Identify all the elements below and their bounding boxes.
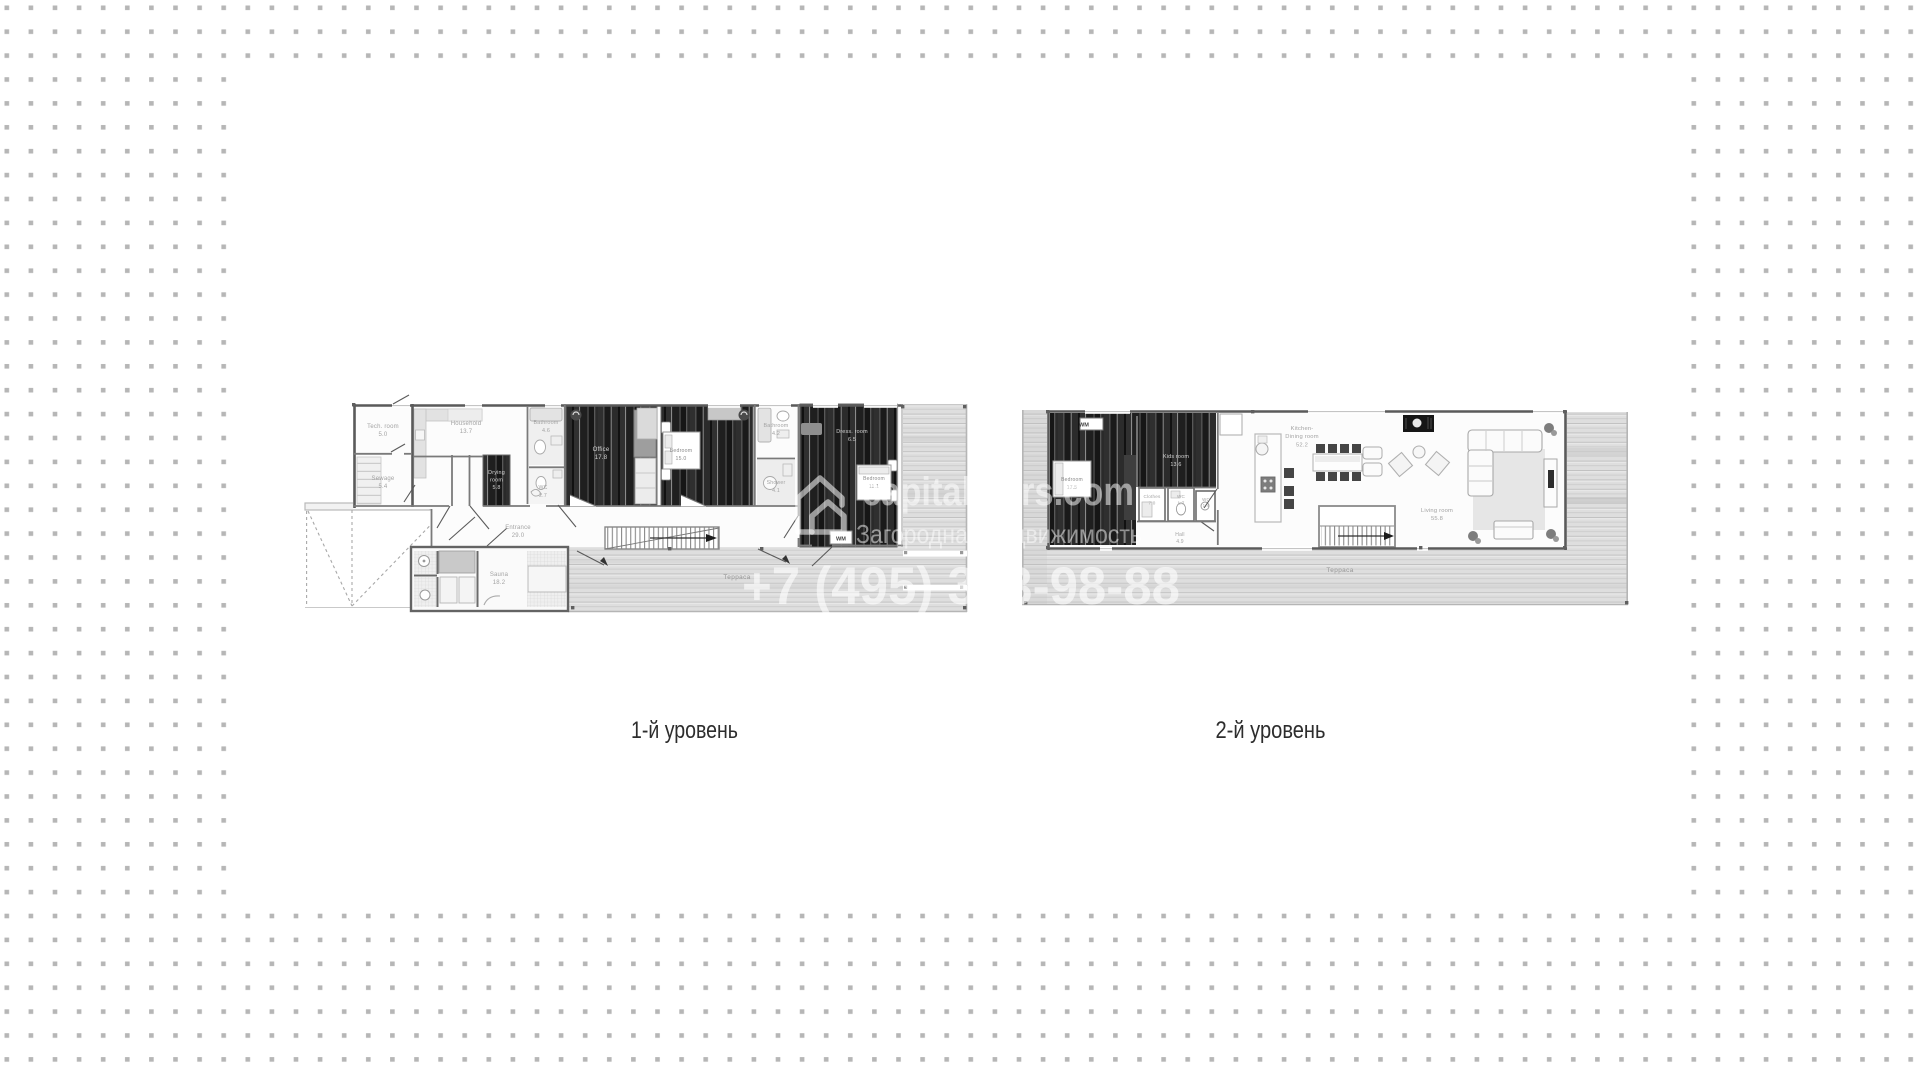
svg-text:2-й уровень: 2-й уровень — [1216, 717, 1326, 744]
svg-text:Терраса: Терраса — [1326, 567, 1353, 574]
svg-text:WM: WM — [836, 537, 846, 543]
svg-text:WC1.7: WC1.7 — [1177, 494, 1186, 506]
svg-text:WC1.4: WC1.4 — [1202, 497, 1210, 508]
svg-text:WM: WM — [1079, 423, 1089, 429]
svg-text:Hall4.9: Hall4.9 — [1175, 532, 1184, 545]
svg-text:1-й уровень: 1-й уровень — [631, 717, 738, 744]
